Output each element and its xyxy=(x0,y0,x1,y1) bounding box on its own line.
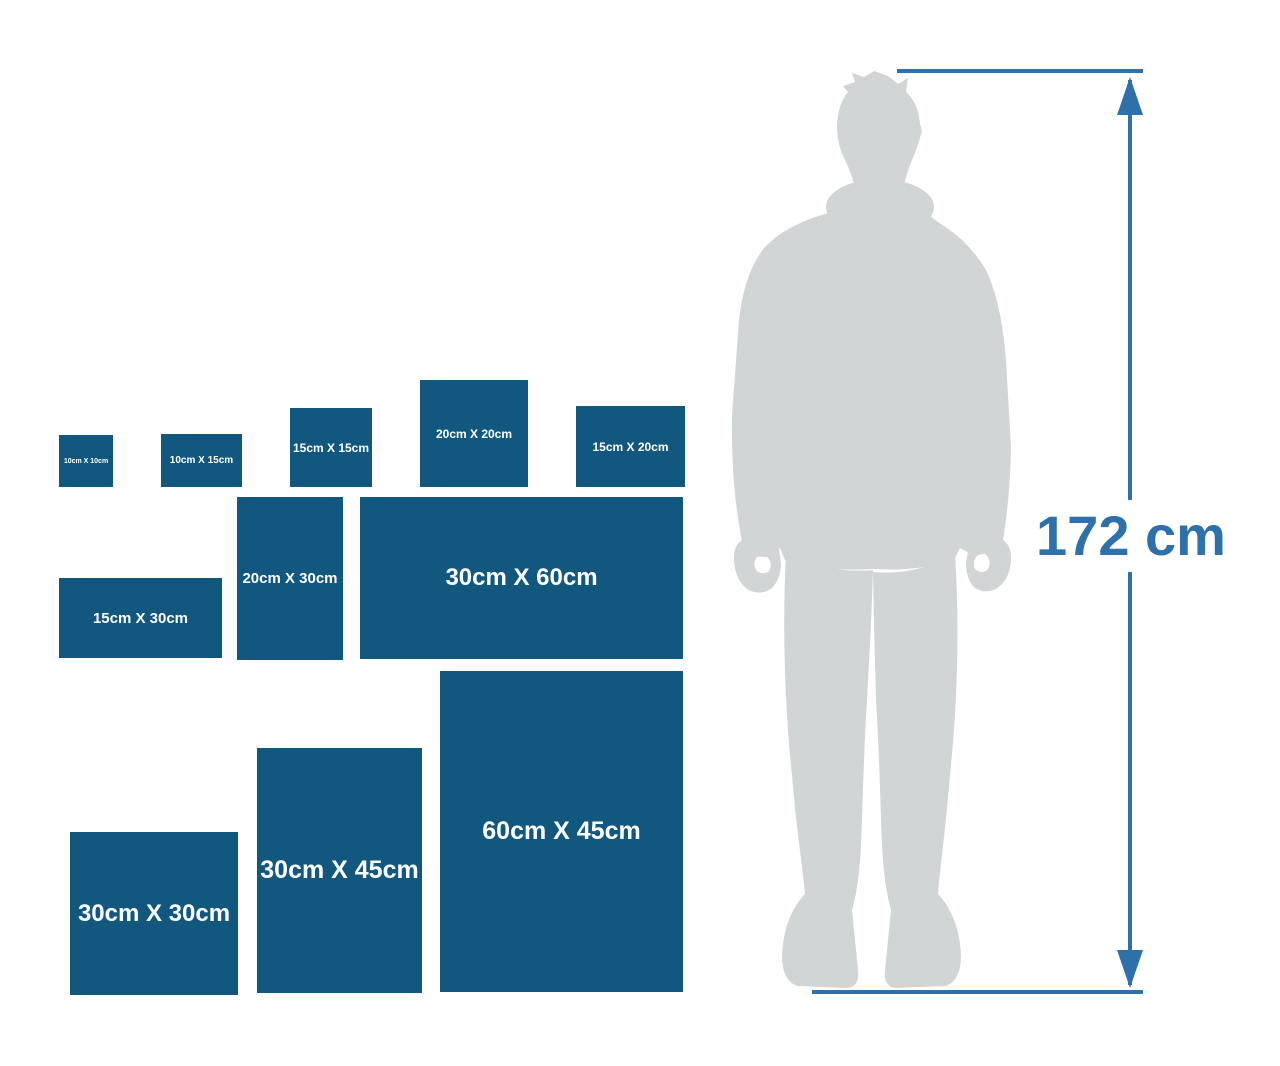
size-box-label: 20cm X 20cm xyxy=(436,427,512,441)
size-comparison-chart: 10cm X 10cm10cm X 15cm15cm X 15cm20cm X … xyxy=(0,0,1280,1066)
size-box: 30cm X 60cm xyxy=(360,497,683,659)
silhouette-head xyxy=(837,71,922,195)
size-box: 15cm X 30cm xyxy=(59,578,222,658)
arrow-up-icon xyxy=(1117,77,1143,115)
size-box-label: 30cm X 60cm xyxy=(445,564,597,592)
person-silhouette xyxy=(715,60,1030,1000)
size-box-label: 60cm X 45cm xyxy=(482,817,640,846)
size-box-label: 10cm X 15cm xyxy=(170,455,233,466)
size-box: 30cm X 30cm xyxy=(70,832,238,995)
size-box: 15cm X 20cm xyxy=(576,406,685,487)
size-box: 10cm X 10cm xyxy=(59,435,113,487)
silhouette-left-leg xyxy=(782,552,873,988)
size-box: 10cm X 15cm xyxy=(161,434,242,487)
size-box-label: 15cm X 15cm xyxy=(293,441,369,455)
size-box: 20cm X 30cm xyxy=(237,497,343,660)
size-box-label: 15cm X 30cm xyxy=(93,610,188,627)
size-box: 30cm X 45cm xyxy=(257,748,422,993)
size-box-label: 30cm X 30cm xyxy=(78,900,230,928)
size-box-label: 15cm X 20cm xyxy=(592,440,668,454)
dimension-bottom-line xyxy=(812,990,1143,994)
size-box-label: 20cm X 30cm xyxy=(242,570,337,587)
arrow-down-icon xyxy=(1117,950,1143,988)
size-box-label: 30cm X 45cm xyxy=(260,856,418,885)
size-box-label: 10cm X 10cm xyxy=(64,458,108,465)
person-height-label: 172 cm xyxy=(1022,500,1240,572)
dimension-top-line xyxy=(897,69,1143,73)
silhouette-right-leg xyxy=(873,554,961,988)
size-box: 15cm X 15cm xyxy=(290,408,372,487)
silhouette-torso xyxy=(732,205,1011,570)
size-box: 20cm X 20cm xyxy=(420,380,528,487)
size-box: 60cm X 45cm xyxy=(440,671,683,992)
silhouette-left-hand xyxy=(734,540,781,593)
silhouette-right-hand xyxy=(966,538,1011,592)
